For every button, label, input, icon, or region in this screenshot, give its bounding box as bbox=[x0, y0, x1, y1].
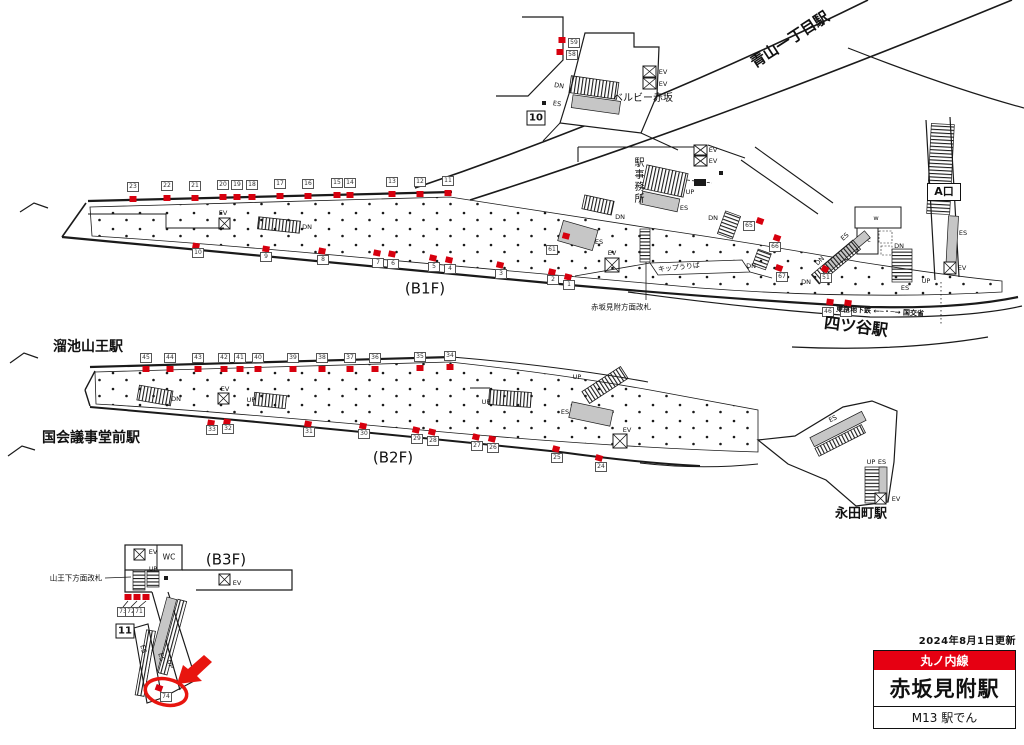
nagatacho-station: 永田町駅 bbox=[835, 508, 887, 521]
es-label: ES bbox=[552, 100, 561, 108]
kokkai-gijidomae-station: 国会議事堂前駅 bbox=[42, 431, 140, 445]
b3f-label: (B3F) bbox=[206, 553, 246, 568]
ev-label: EV bbox=[623, 427, 632, 434]
up-label: UP bbox=[482, 399, 491, 406]
ev-label: EV bbox=[958, 265, 967, 272]
up-label: UP bbox=[867, 459, 876, 466]
ev-label: EV bbox=[219, 210, 228, 217]
yotsuya-station: 四ツ谷駅 bbox=[823, 315, 888, 339]
es-label: ES bbox=[828, 414, 838, 424]
dn-label: DN bbox=[615, 214, 625, 221]
ev-label: EV bbox=[221, 386, 230, 393]
up-label: UP bbox=[686, 189, 695, 196]
es-label: ES bbox=[680, 205, 688, 212]
akasaka-gate-label: 赤坂見附方面改札 bbox=[591, 303, 651, 311]
ev-label: EV bbox=[709, 147, 718, 154]
ev-label: EV bbox=[659, 69, 668, 76]
bellevie-akasaka: ベルビー赤坂 bbox=[613, 94, 673, 104]
up-label: UP bbox=[922, 278, 931, 285]
es-label: ES bbox=[840, 232, 850, 242]
ev-label: EV bbox=[659, 81, 668, 88]
b1f-label: (B1F) bbox=[405, 282, 445, 297]
dn-label: DN bbox=[171, 396, 181, 403]
up-label: UP bbox=[166, 659, 175, 669]
line-name: 丸ノ内線 bbox=[874, 651, 1015, 670]
es-label: ES bbox=[157, 652, 165, 662]
es-label: ES bbox=[595, 239, 603, 246]
dn-label: DN bbox=[554, 82, 565, 90]
up-label: UP bbox=[247, 397, 256, 404]
c-room-label: c bbox=[867, 237, 871, 244]
es-label: ES bbox=[878, 459, 886, 466]
dn-label: DN bbox=[746, 263, 756, 270]
ev-label: EV bbox=[608, 250, 617, 257]
dn-label: DN bbox=[708, 215, 718, 222]
ev-label: EV bbox=[892, 496, 901, 503]
updated-date: 2024年8月1日更新 bbox=[873, 632, 1016, 647]
station-name: 赤坂見附駅 bbox=[874, 670, 1015, 707]
up-label: UP bbox=[573, 374, 582, 381]
ev-label: EV bbox=[709, 158, 718, 165]
station-office: 駅事務所 bbox=[632, 157, 642, 205]
dn-label: DN bbox=[814, 255, 826, 267]
es-label: ES bbox=[901, 285, 909, 292]
up-label: UP bbox=[149, 567, 157, 573]
w-room-label: w bbox=[873, 215, 878, 222]
legend-table: 丸ノ内線 赤坂見附駅 M13 駅でん bbox=[873, 650, 1016, 729]
legend: 2024年8月1日更新 丸ノ内線 赤坂見附駅 M13 駅でん bbox=[873, 632, 1016, 729]
station-map: 2322212019181716151413121110987654321595… bbox=[0, 0, 1024, 745]
dn-label: DN bbox=[302, 224, 312, 231]
dn-label: DN bbox=[894, 243, 904, 250]
aoyama-itchome-station: 青山一丁目駅 bbox=[748, 9, 832, 71]
ticket-office-label: キップうりば bbox=[658, 262, 701, 273]
station-code-row: M13 駅でん bbox=[874, 707, 1015, 728]
wc-label: WC bbox=[163, 553, 176, 561]
ev-label: EV bbox=[233, 580, 242, 587]
es-label: ES bbox=[959, 230, 967, 237]
dn-label: DN bbox=[801, 279, 811, 286]
ev-label: EV bbox=[149, 549, 158, 556]
sanno-gate-label: 山王下方面改札 bbox=[50, 574, 103, 582]
es-label: ES bbox=[139, 644, 147, 654]
tameike-sanno-station: 溜池山王駅 bbox=[53, 340, 123, 354]
b2f-label: (B2F) bbox=[373, 451, 413, 466]
es-label: ES bbox=[561, 409, 569, 416]
label-layer: 青山一丁目駅ベルビー赤坂駅事務所四ツ谷駅東京地下鉄 ←─・─→ 国交省溜池山王駅… bbox=[0, 0, 1024, 745]
